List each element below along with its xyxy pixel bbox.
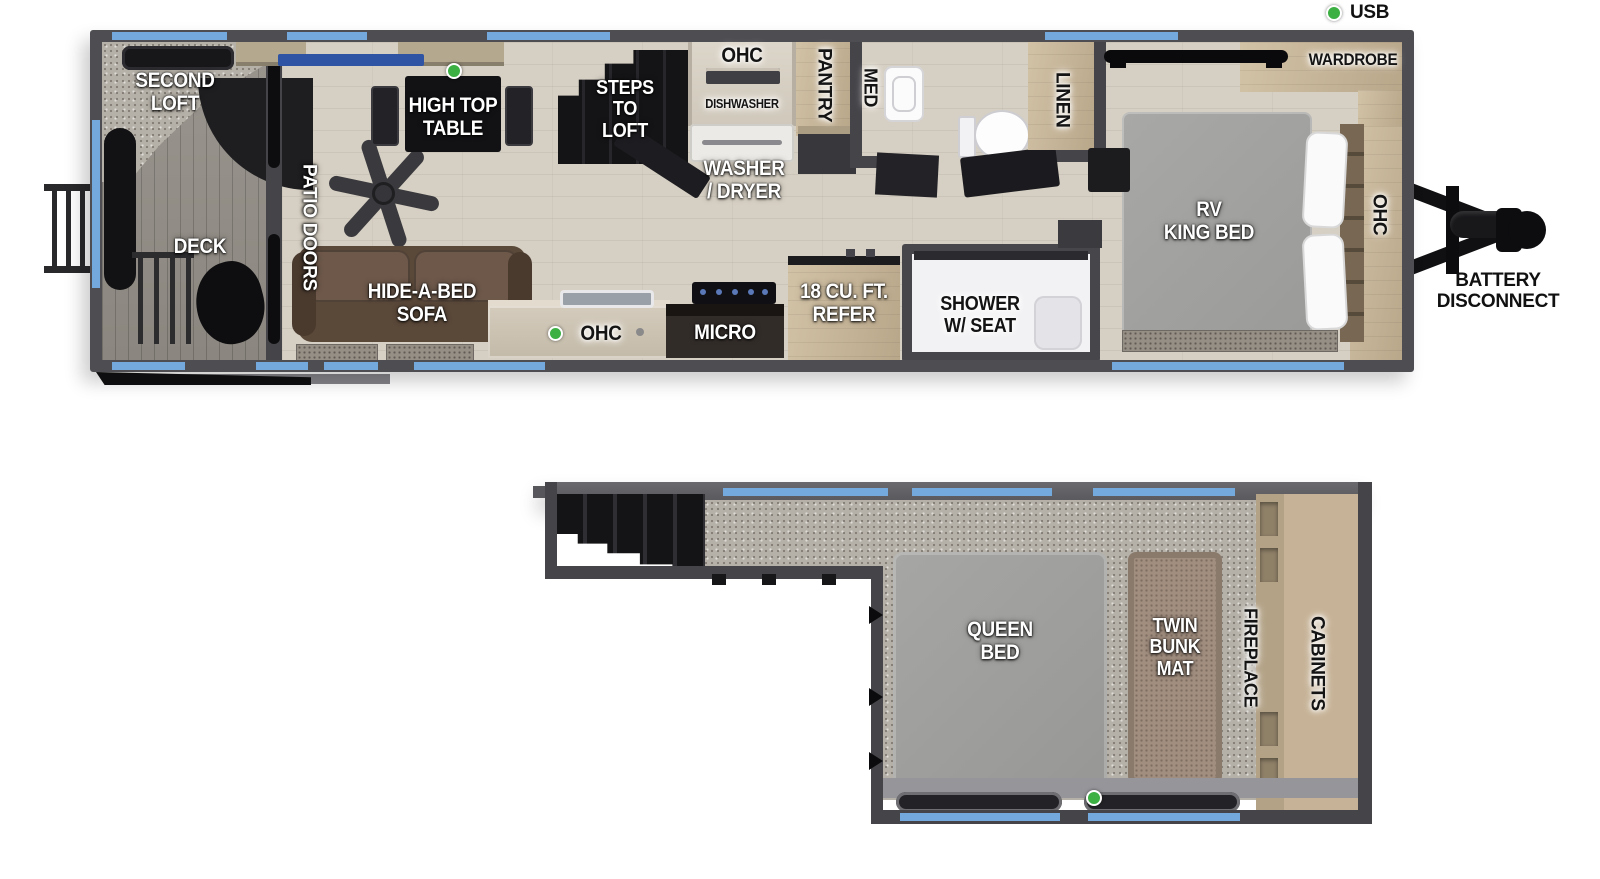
queen-bed-mattress <box>893 552 1107 792</box>
loft-window <box>1088 813 1240 821</box>
loft-rail-tick <box>762 574 776 585</box>
window <box>487 32 610 40</box>
loft-window <box>1093 488 1235 496</box>
loft-wall-left-top <box>545 482 557 579</box>
window <box>414 362 545 370</box>
loft-walkway-carpet <box>703 500 883 568</box>
entry-ladder-bar <box>52 184 57 273</box>
window <box>112 32 227 40</box>
entry-door <box>92 120 100 288</box>
usb-legend-dot <box>1326 5 1342 21</box>
cabinet-face-recess <box>1260 712 1278 746</box>
entry-ladder-bar <box>80 184 85 273</box>
loft-rail-tick <box>822 574 836 585</box>
main-plan-outer-wall <box>90 30 1414 372</box>
window <box>287 32 367 40</box>
floorplan-page: USB BATTERY DISCONNECT HIGH TOP TABLE <box>0 0 1600 879</box>
window <box>1112 362 1344 370</box>
entry-ladder-bar <box>66 184 71 273</box>
loft-steps <box>557 494 705 574</box>
usb-dot-high-top <box>446 63 462 79</box>
usb-dot-loft <box>1086 790 1102 806</box>
loft-window <box>912 488 1052 496</box>
window <box>1045 32 1178 40</box>
cabinet-face-recess <box>1260 548 1278 582</box>
window <box>112 362 185 370</box>
loft-cabinets <box>1284 494 1358 810</box>
usb-legend-label: USB <box>1350 1 1400 25</box>
loft-window <box>900 813 1060 821</box>
battery-disconnect-label: BATTERY DISCONNECT <box>1430 268 1566 316</box>
loft-window <box>723 488 888 496</box>
cabinet-face-recess <box>1260 502 1278 536</box>
window <box>324 362 378 370</box>
loft-rail-tick <box>712 574 726 585</box>
hitch-coupler-ball <box>1508 211 1546 249</box>
window <box>256 362 308 370</box>
usb-dot-kitchen <box>548 326 563 341</box>
loft-wall-right <box>1358 482 1372 824</box>
loft-window-frame <box>896 792 1062 812</box>
loft-window-frame <box>1084 792 1240 812</box>
twin-bunk-mat <box>1128 552 1222 784</box>
